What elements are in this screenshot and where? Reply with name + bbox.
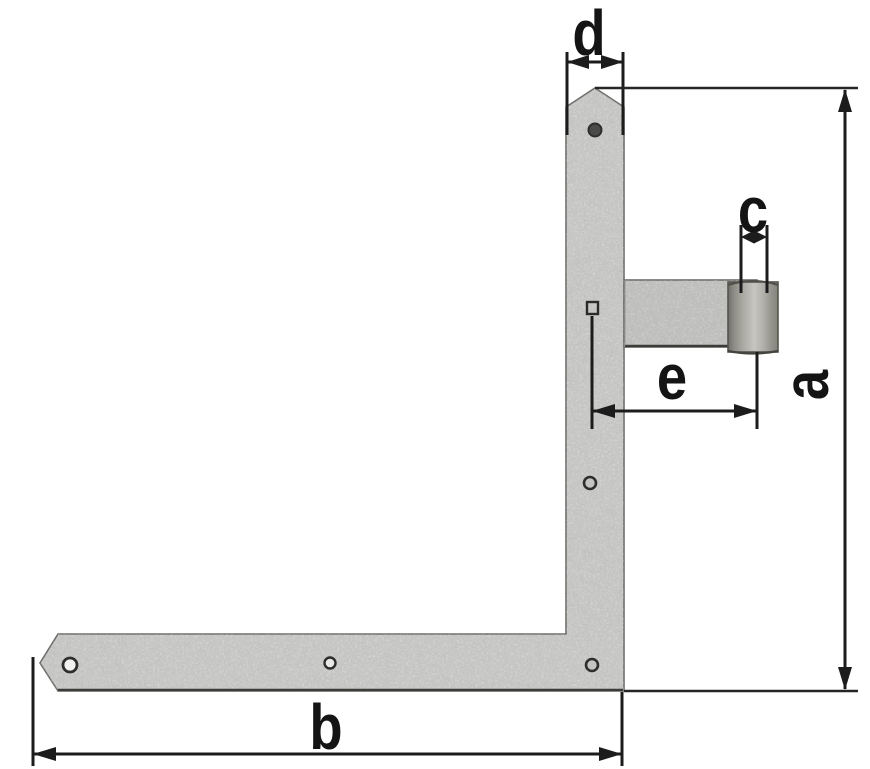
dimension-label-b: b <box>309 691 342 763</box>
dimension-label-e: e <box>657 341 687 413</box>
l-shaped-strap <box>40 88 624 691</box>
dimension-label-a: a <box>770 369 842 400</box>
dimension-a: a <box>595 88 858 691</box>
galvanized-texture-overlay <box>0 0 870 769</box>
arrowhead-up-icon <box>838 89 852 112</box>
arrowhead-left-icon <box>33 747 56 761</box>
screw-hole-mid <box>584 477 596 489</box>
screw-hole-bottom-mid <box>325 658 336 669</box>
hinge-body <box>0 0 870 769</box>
arrowhead-right-icon <box>734 404 757 418</box>
dimension-label-d: d <box>572 0 605 69</box>
dimension-label-c: c <box>738 174 768 246</box>
arrowhead-right-icon <box>599 747 622 761</box>
screw-hole-corner <box>586 659 598 671</box>
screw-hole-left-end <box>63 658 77 672</box>
arrowhead-down-icon <box>838 667 852 690</box>
hinge-dimension-drawing: d c e a b <box>0 0 870 769</box>
figure-container: d c e a b <box>0 0 870 769</box>
screw-hole-top <box>589 124 602 137</box>
hinge-barrel <box>728 281 778 354</box>
dimension-c: c <box>738 174 768 293</box>
